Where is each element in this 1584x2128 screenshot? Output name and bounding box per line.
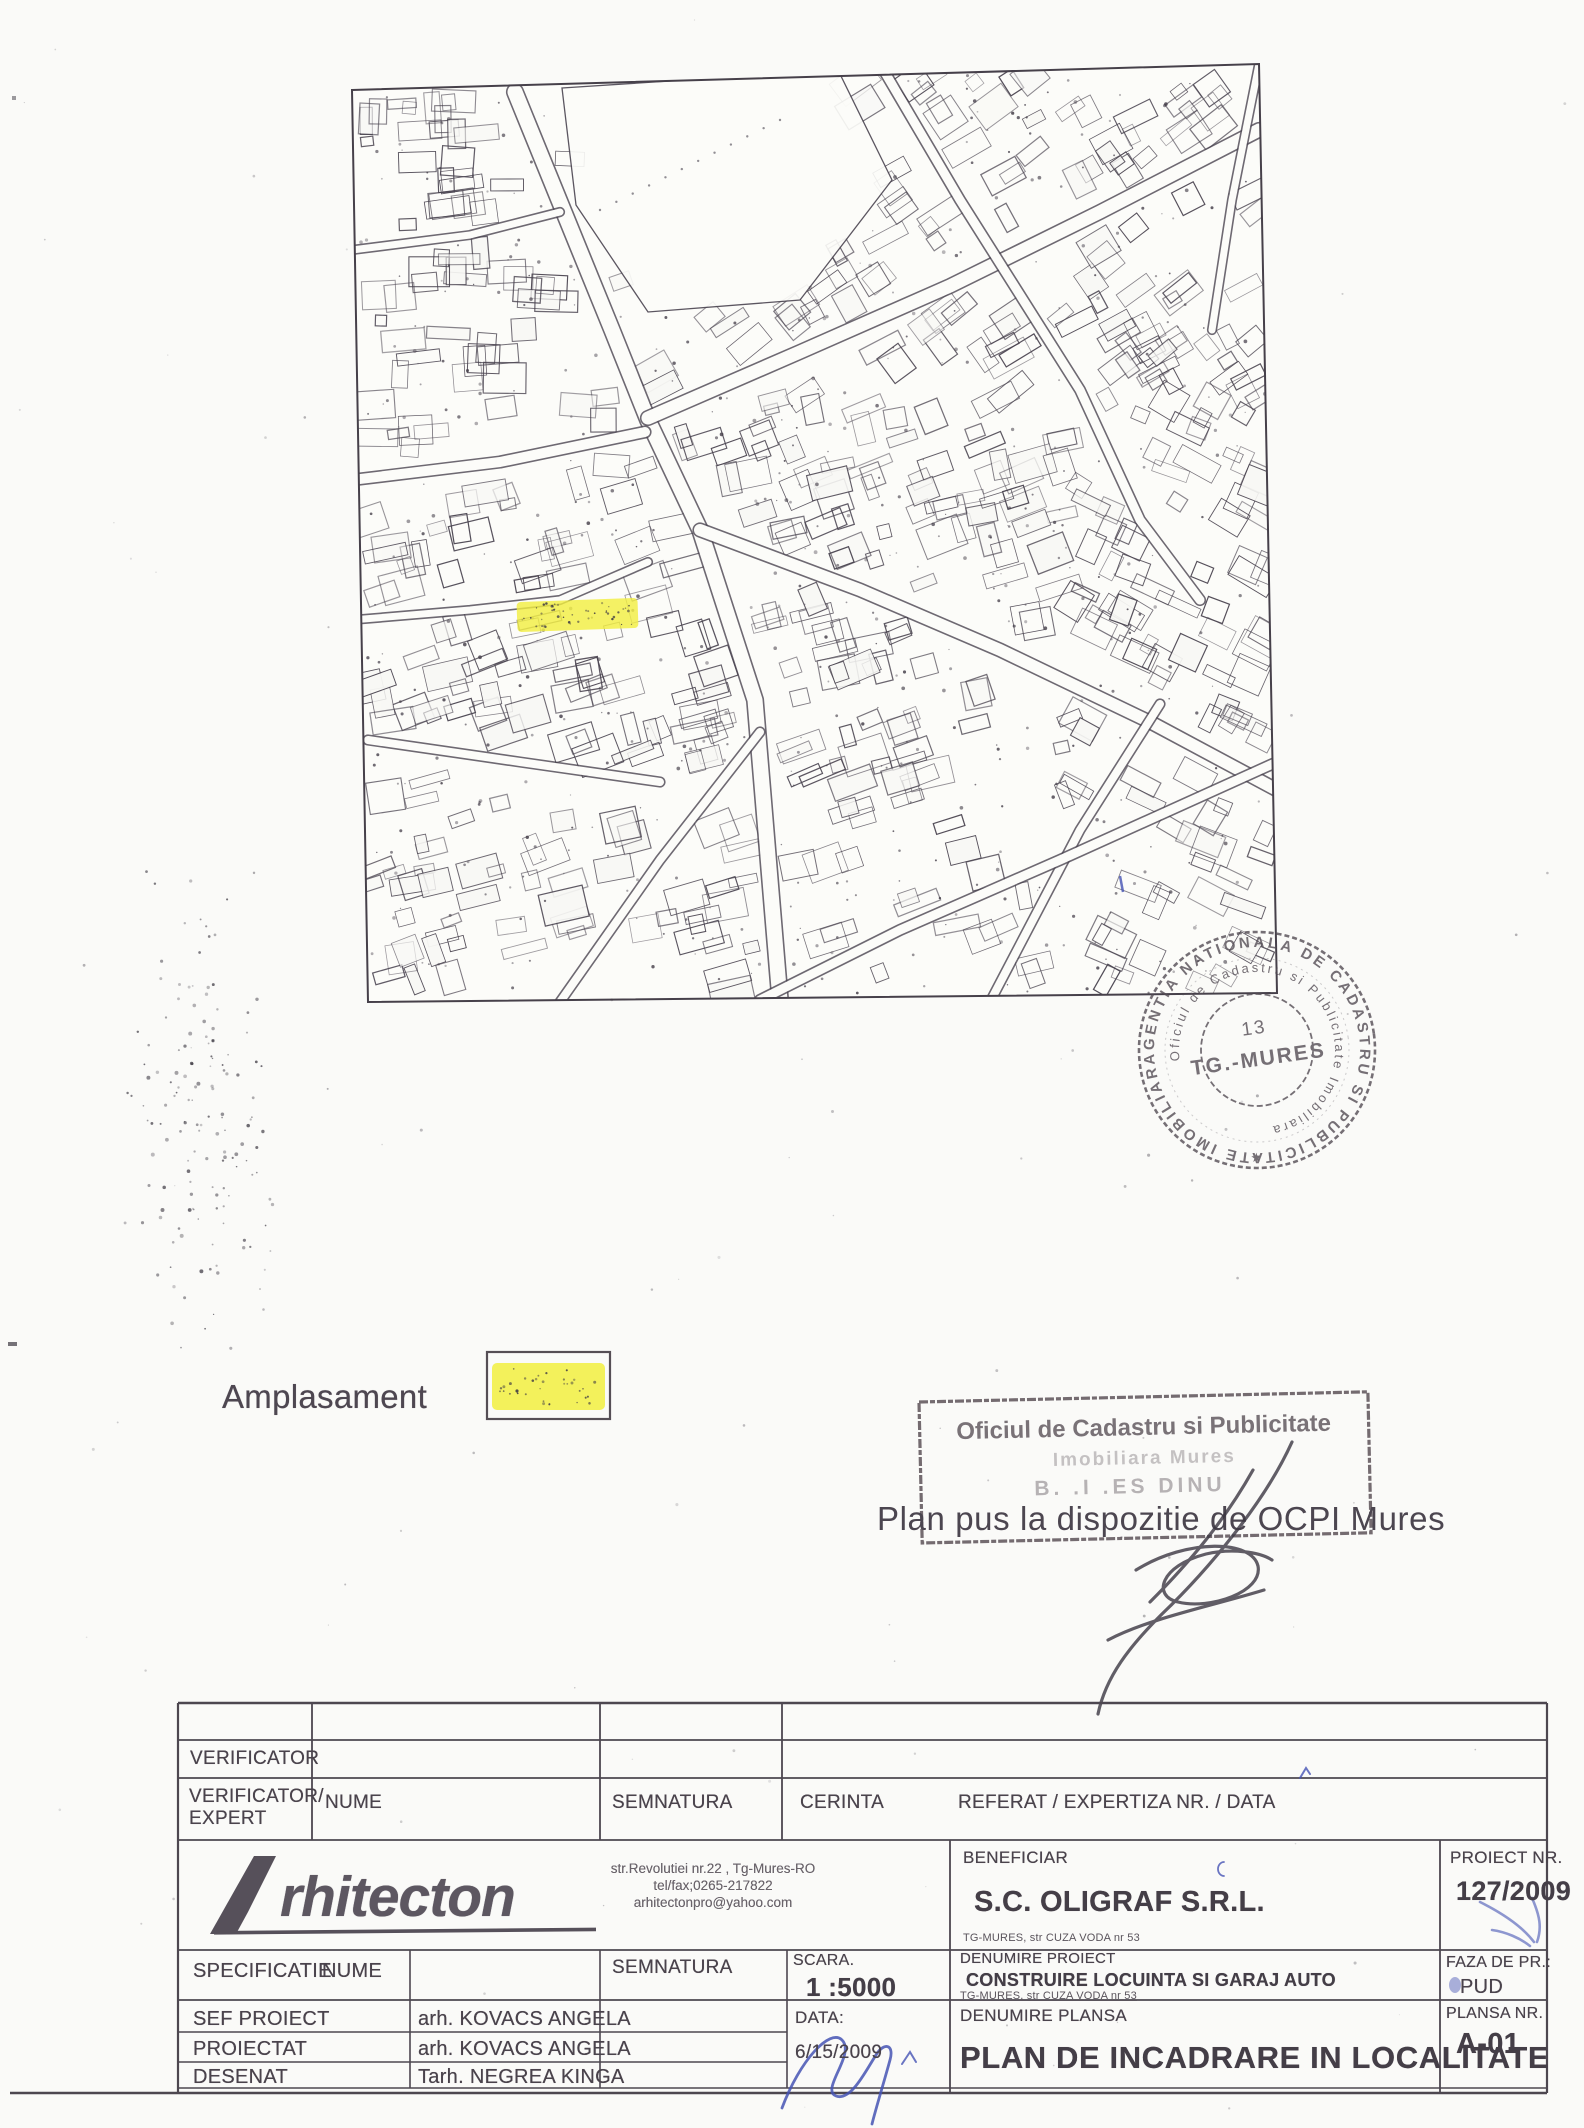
data-value: 6/15/2009	[795, 2042, 882, 2064]
cerinta-header: CERINTA	[800, 1792, 884, 1814]
faza-value: PUD	[1460, 1976, 1503, 1999]
row-label-proiectat: PROIECTAT	[193, 2038, 307, 2061]
plansa-nr-value: A-01	[1456, 2028, 1520, 2061]
round-stamp-number: 13	[1240, 1017, 1268, 1041]
rect-stamp-line3: B. .I .ES DINU	[1034, 1473, 1226, 1500]
denumire-proiect-address: TG-MURES, str CUZA VODA nr 53	[960, 1990, 1137, 2002]
legend-swatch	[487, 1352, 610, 1419]
proiect-nr-value: 127/2009	[1456, 1876, 1571, 1907]
scara-label: SCARA.	[793, 1952, 854, 1970]
specificatie-header: SPECIFICATIE	[193, 1960, 332, 1983]
verificator-label: VERIFICATOR	[190, 1748, 319, 1770]
beneficiar-name: S.C. OLIGRAF S.R.L.	[974, 1886, 1265, 1919]
ocpi-note: Plan pus la dispozitie de OCPI Mures	[877, 1500, 1445, 1537]
nume-header: NUME	[325, 1792, 382, 1814]
firm-address-line2: tel/fax;0265-217822	[608, 1877, 818, 1894]
faza-label: FAZA DE PR.:	[1446, 1954, 1551, 1972]
verificator-expert-label-1: VERIFICATOR/	[189, 1786, 324, 1808]
beneficiar-label: BENEFICIAR	[963, 1848, 1068, 1868]
beneficiar-address: TG-MURES, str CUZA VODA nr 53	[963, 1932, 1140, 1944]
small-tick-mark	[1300, 1768, 1310, 1778]
round-stamp-star-icon: ★	[1251, 1150, 1263, 1165]
small-c-mark	[1218, 1862, 1224, 1876]
rect-stamp-line2: Imobiliara Mures	[1053, 1446, 1236, 1471]
firm-address-line1: str.Revolutiei nr.22 , Tg-Mures-RO	[608, 1860, 818, 1877]
denumire-proiect-value: CONSTRUIRE LOCUINTA SI GARAJ AUTO	[966, 1970, 1336, 1991]
row-label-desenat: DESENAT	[193, 2066, 288, 2089]
legend-label: Amplasament	[222, 1378, 427, 1416]
rect-stamp-line1: Oficiul de Cadastru si Publicitate	[956, 1410, 1331, 1445]
scanned-plan-page: AGENTIA NATIONALA DE CADASTRU SI PUBLICI…	[0, 0, 1584, 2128]
denumire-proiect-label: DENUMIRE PROIECT	[960, 1950, 1116, 1967]
scara-value: 1 :5000	[806, 1972, 896, 2003]
signature-caret	[902, 2052, 916, 2064]
legend-highlight	[492, 1363, 605, 1410]
data-label: DATA:	[795, 2008, 844, 2028]
denumire-plansa-label: DENUMIRE PLANSA	[960, 2006, 1127, 2026]
firm-address: str.Revolutiei nr.22 , Tg-Mures-RO tel/f…	[608, 1860, 818, 1911]
semnatura-header: SEMNATURA	[612, 1792, 733, 1814]
row-name-proiectat: arh. KOVACS ANGELA	[418, 2038, 631, 2061]
row-label-sef-proiect: SEF PROIECT	[193, 2008, 330, 2031]
arhitecton-logo: rhitecton	[206, 1852, 606, 1940]
logo-wordmark: rhitecton	[280, 1864, 515, 1930]
referat-header: REFERAT / EXPERTIZA NR. / DATA	[958, 1792, 1276, 1814]
round-stamp-city: TG.-MURES	[1189, 1039, 1327, 1081]
semnatura-header-2: SEMNATURA	[612, 1957, 733, 1979]
plansa-nr-label: PLANSA NR.	[1446, 2005, 1543, 2023]
proiect-nr-label: PROIECT NR.	[1450, 1848, 1563, 1868]
firm-address-line3: arhitectonpro@yahoo.com	[608, 1894, 818, 1911]
row-name-desenat: Tarh. NEGREA KINGA	[418, 2066, 625, 2089]
cadastral-map	[339, 56, 1291, 1008]
verificator-expert-label-2: EXPERT	[189, 1808, 266, 1830]
nume-header-2: NUME	[322, 1960, 382, 1983]
row-name-sef-proiect: arh. KOVACS ANGELA	[418, 2008, 631, 2031]
site-highlight-marker	[517, 598, 639, 632]
